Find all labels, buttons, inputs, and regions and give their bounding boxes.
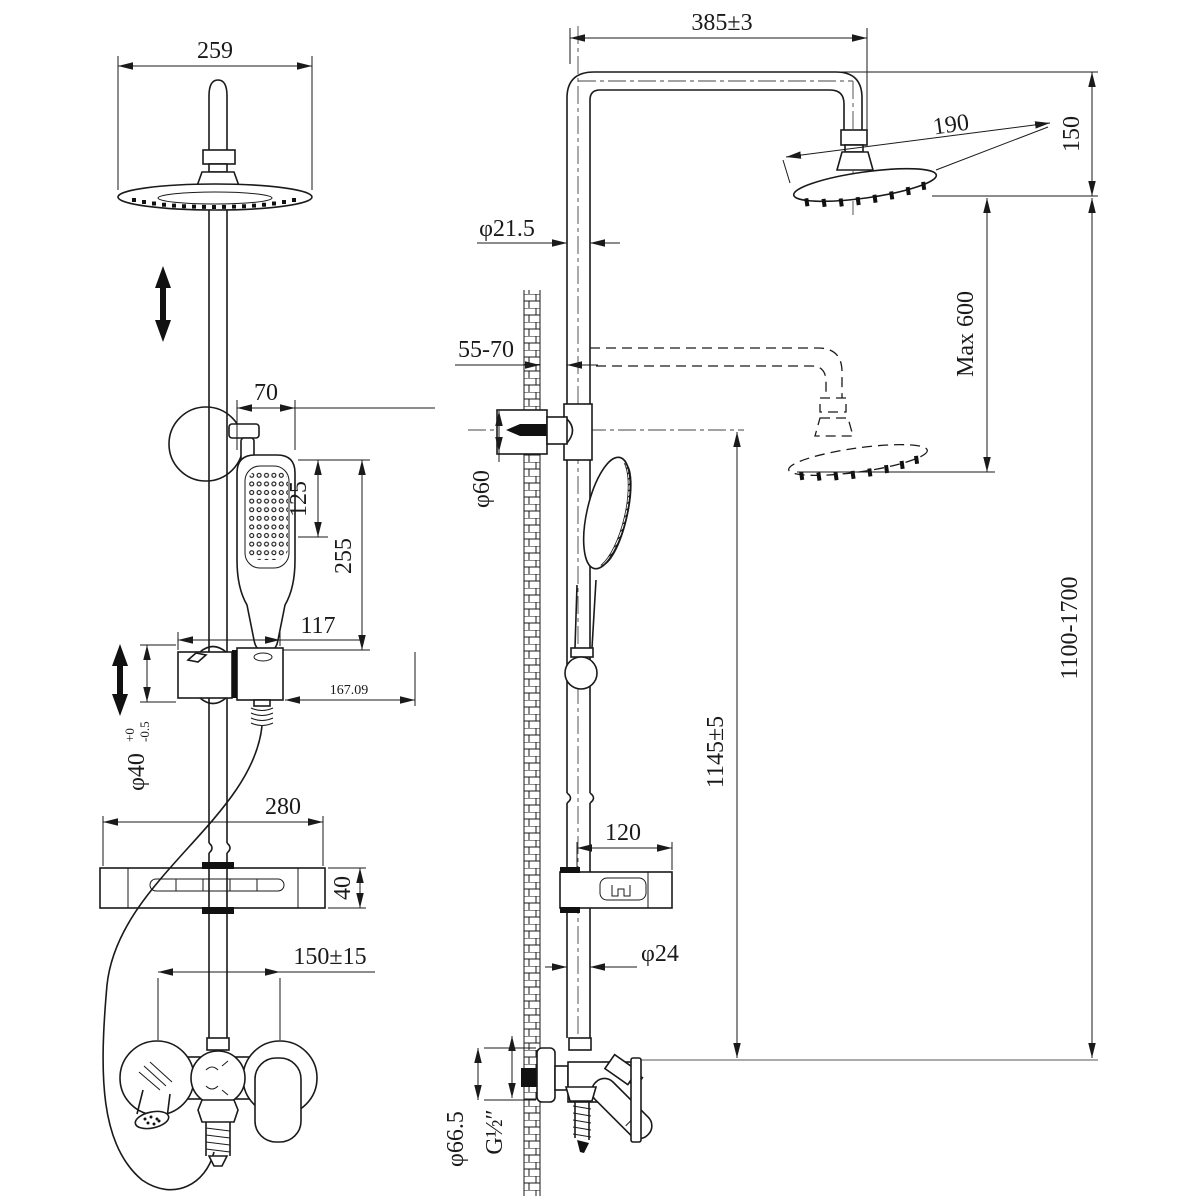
dim-label-overall-height: 1100-1700 <box>1057 576 1083 679</box>
dim-shelf-width: 280 <box>103 794 323 866</box>
dim-label-column-tol-lower: -0.5 <box>137 721 152 742</box>
wall-bracket-side <box>497 404 592 460</box>
valve-side <box>521 1038 657 1153</box>
dim-label-shelf-thickness: 40 <box>330 876 356 900</box>
dim-label-slider-width: 117 <box>300 613 335 639</box>
spout-outlet <box>134 1109 171 1132</box>
dim-label-handshower-width: 70 <box>254 380 278 406</box>
dim-label-inlet-height: 1145±5 <box>703 716 729 788</box>
escutcheon-plate-side <box>631 1058 641 1142</box>
dim-label-pipe-diameter-top: φ21.5 <box>479 216 535 242</box>
dim-label-handshower-length: 255 <box>331 538 357 574</box>
hose-nut-ball <box>565 657 597 689</box>
hand-shower-side <box>565 453 640 689</box>
mixer-faucet-front <box>120 1038 317 1166</box>
front-view: 259 70 <box>100 38 435 1190</box>
dim-handshower-width: 70 <box>237 380 435 450</box>
shelf-front <box>100 862 325 914</box>
dim-inlet-height: 1145±5 <box>703 432 737 1058</box>
dim-slider-offset: 167.09 <box>285 652 415 706</box>
dim-label-shelf-depth: 120 <box>605 820 641 846</box>
dim-label-bracket-diameter: φ60 <box>469 470 495 508</box>
dim-label-column-diameter: φ40 <box>124 753 150 791</box>
dim-max-adjust: Max 600 <box>953 198 987 472</box>
shelf-side <box>560 867 672 913</box>
dim-label-head-width: 259 <box>197 38 233 64</box>
dim-thread-size: G½″ <box>482 1036 512 1155</box>
dim-label-slider-offset: 167.09 <box>330 683 369 698</box>
drawing-canvas: 259 70 <box>0 0 1200 1200</box>
dim-label-wall-gap: 55-70 <box>458 337 514 363</box>
dim-label-column-tol-upper: +0 <box>122 728 137 742</box>
dim-pipe-diameter-top: φ21.5 <box>477 216 620 243</box>
dim-label-head-diameter: 190 <box>931 110 970 141</box>
dim-inlet-spacing: 150±15 <box>158 944 375 1040</box>
dim-label-valve-diameter: φ66.5 <box>443 1111 469 1167</box>
rain-shower-head-front <box>118 80 312 210</box>
dim-head-drop: 150 <box>1059 72 1092 196</box>
technical-drawing: 259 70 <box>0 0 1200 1200</box>
dim-label-pipe-diameter-bottom: φ24 <box>641 941 679 967</box>
shower-arm-side <box>567 72 873 170</box>
dim-handshower-face: 125 <box>286 460 370 537</box>
height-adjust-arrow-top <box>155 266 171 342</box>
faucet-handle-front <box>255 1058 301 1142</box>
diverter-front <box>191 1051 245 1105</box>
dim-label-head-drop: 150 <box>1059 116 1085 152</box>
dim-label-shelf-width: 280 <box>265 794 301 820</box>
dim-label-inlet-spacing: 150±15 <box>293 944 366 970</box>
dim-label-max-adjust: Max 600 <box>953 291 979 377</box>
dim-arm-reach: 385±3 <box>570 10 867 140</box>
slider-bracket-front <box>178 647 283 726</box>
hand-shower-spray-face <box>248 470 288 560</box>
dim-column-diameter: φ40 +0 -0.5 <box>122 645 176 791</box>
dim-pipe-diameter-bottom: φ24 <box>545 941 679 967</box>
side-view: 385±3 190 150 Max 600 1100-1700 <box>443 10 1098 1196</box>
dim-label-thread-size: G½″ <box>482 1109 508 1154</box>
dim-label-arm-reach: 385±3 <box>691 10 752 36</box>
phantom-arm-lower <box>590 348 930 488</box>
dim-shelf-depth: 120 <box>577 820 672 870</box>
dim-shelf-thickness: 40 <box>328 868 366 908</box>
dim-overall-height: 1100-1700 <box>1057 198 1092 1058</box>
height-adjust-arrow-slider <box>112 644 128 716</box>
dim-label-handshower-face: 125 <box>286 481 312 517</box>
shower-hose <box>103 726 262 1190</box>
dim-bracket-diameter: φ60 <box>469 411 499 508</box>
